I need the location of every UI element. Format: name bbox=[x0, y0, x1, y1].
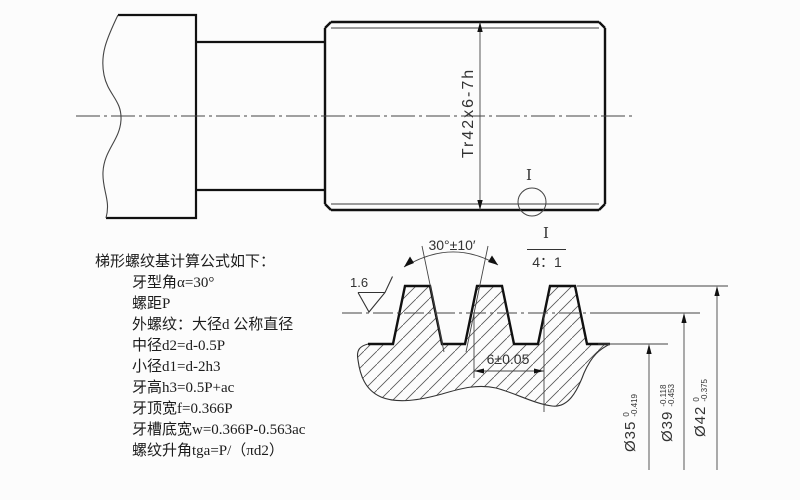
detail-label-divider bbox=[527, 249, 566, 250]
break-line bbox=[103, 15, 121, 218]
hatch-region bbox=[357, 286, 610, 406]
dia-35-tolerance: 0 -0.419 bbox=[623, 394, 640, 417]
arrow-d42 bbox=[714, 286, 719, 296]
arrow-d35 bbox=[646, 344, 651, 354]
dia-42-tolerance: 0 -0.375 bbox=[693, 379, 710, 402]
thread-dim-arrow-bottom bbox=[477, 200, 482, 210]
dia-42-value: Ø42 bbox=[690, 406, 712, 437]
formula-line: 螺纹升角tga=P/（πd2） bbox=[95, 441, 305, 462]
shaft-left-section bbox=[106, 15, 196, 218]
main-view bbox=[76, 15, 632, 218]
arrow-d39 bbox=[681, 313, 686, 323]
detail-circle bbox=[518, 188, 546, 216]
thread-angle-dim: 30°±10′ bbox=[410, 237, 494, 253]
angle-arrow-left bbox=[404, 257, 414, 268]
detail-marker-label: I bbox=[521, 166, 537, 184]
formula-title: 梯形螺纹基计算公式如下： bbox=[95, 252, 305, 273]
thread-dim-arrow-top bbox=[477, 22, 482, 32]
thread-spec-label: Tr42x6-7h bbox=[459, 53, 479, 173]
roughness-value: 1.6 bbox=[350, 275, 378, 290]
formula-line: 螺距P bbox=[95, 294, 305, 315]
formula-line: 中径d2=d-0.5P bbox=[95, 336, 305, 357]
formula-block: 梯形螺纹基计算公式如下： 牙型角α=30° 螺距P 外螺纹：大径d 公称直径 中… bbox=[95, 252, 305, 462]
formula-line: 牙顶宽f=0.366P bbox=[95, 399, 305, 420]
detail-scale-label: 4：1 bbox=[527, 252, 567, 272]
dia-label-42: Ø42 0 -0.375 bbox=[690, 368, 712, 448]
formula-line: 牙高h3=0.5P+ac bbox=[95, 378, 305, 399]
dia-39-tolerance: -0.118 -0.453 bbox=[660, 384, 677, 407]
formula-line: 牙槽底宽w=0.366P-0.563ac bbox=[95, 420, 305, 441]
dia-label-35: Ø35 0 -0.419 bbox=[620, 383, 642, 463]
formula-line: 牙型角α=30° bbox=[95, 273, 305, 294]
angle-arrow-right bbox=[488, 256, 498, 266]
engineering-drawing: 梯形螺纹基计算公式如下： 牙型角α=30° 螺距P 外螺纹：大径d 公称直径 中… bbox=[0, 0, 800, 500]
formula-line: 小径d1=d-2h3 bbox=[95, 357, 305, 378]
detail-view-label: I bbox=[536, 224, 556, 242]
formula-line: 外螺纹：大径d 公称直径 bbox=[95, 315, 305, 336]
dia-39-value: Ø39 bbox=[657, 411, 679, 442]
pitch-dim-value: 6±0.05 bbox=[473, 351, 543, 367]
dia-35-value: Ø35 bbox=[620, 421, 642, 452]
dia-label-39: Ø39 -0.118 -0.453 bbox=[657, 373, 679, 453]
